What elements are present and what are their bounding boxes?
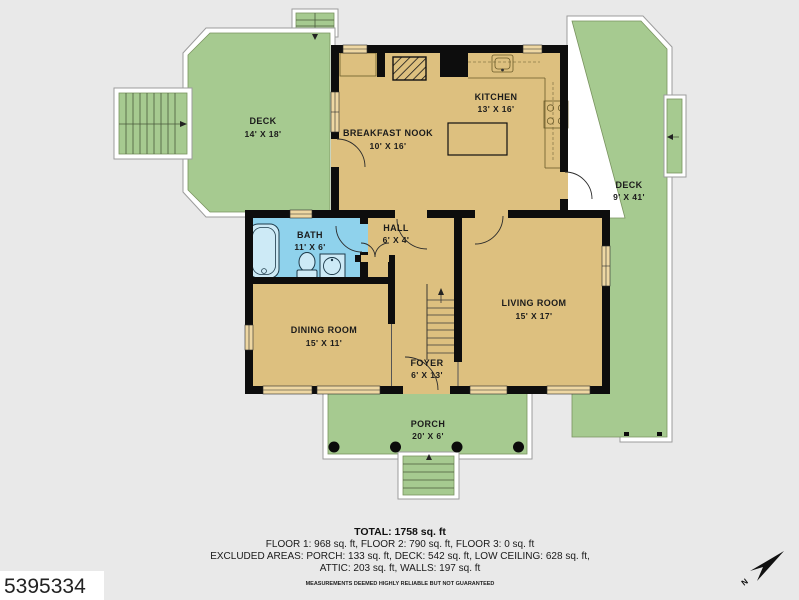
kitchen-island	[448, 123, 507, 155]
room-label-foyer: FOYER	[410, 358, 443, 368]
room-dims-porch: 20' X 6'	[412, 431, 444, 441]
deck-left-stairs	[114, 88, 192, 159]
room-dims-breakfast-nook: 10' X 16'	[370, 141, 407, 151]
watermark-id: 5395334	[4, 575, 86, 598]
fireplace-block	[440, 53, 468, 77]
room-label-deck-left: DECK	[249, 116, 276, 126]
total-area-text: TOTAL: 1758 sq. ft	[354, 526, 446, 538]
chimney-hatch	[393, 57, 426, 80]
room-label-porch: PORCH	[411, 419, 446, 429]
room-label-dining-room: DINING ROOM	[291, 325, 357, 335]
room-dims-deck-right: 9' X 41'	[613, 192, 645, 202]
room-dims-kitchen: 13' X 16'	[478, 104, 515, 114]
compass: N	[740, 551, 784, 588]
floor-plan-canvas: DECK 14' X 18' BREAKFAST NOOK 10' X 16' …	[0, 0, 799, 600]
excluded-areas-line1: EXCLUDED AREAS: PORCH: 133 sq. ft, DECK:…	[210, 551, 590, 562]
floor-areas-text: FLOOR 1: 968 sq. ft, FLOOR 2: 790 sq. ft…	[266, 539, 535, 550]
north-arrow-icon	[750, 551, 784, 581]
room-label-breakfast-nook: BREAKFAST NOOK	[343, 128, 433, 138]
room-label-deck-right: DECK	[615, 180, 642, 190]
disclaimer-text: MEASUREMENTS DEEMED HIGHLY RELIABLE BUT …	[306, 581, 495, 587]
floor-plan-page: DECK 14' X 18' BREAKFAST NOOK 10' X 16' …	[0, 0, 799, 600]
room-dims-hall: 6' X 4'	[383, 235, 410, 245]
north-label: N	[740, 577, 750, 588]
room-dims-foyer: 6' X 13'	[411, 370, 443, 380]
room-label-bath: BATH	[297, 230, 323, 240]
watermark: 5395334	[0, 571, 104, 600]
room-dims-living-room: 15' X 17'	[516, 311, 553, 321]
room-label-hall: HALL	[383, 223, 409, 233]
room-label-living-room: LIVING ROOM	[502, 298, 567, 308]
excluded-areas-line2: ATTIC: 203 sq. ft, WALLS: 197 sq. ft	[320, 563, 481, 574]
deck-right-landing	[664, 95, 686, 177]
room-dims-deck-left: 14' X 18'	[245, 129, 282, 139]
toilet	[299, 253, 315, 272]
room-dims-dining-room: 15' X 11'	[306, 338, 342, 348]
room-label-kitchen: KITCHEN	[475, 92, 518, 102]
area-summary: TOTAL: 1758 sq. ft FLOOR 1: 968 sq. ft, …	[210, 526, 590, 587]
room-dims-bath: 11' X 6'	[294, 242, 325, 252]
porch-steps	[398, 452, 459, 499]
